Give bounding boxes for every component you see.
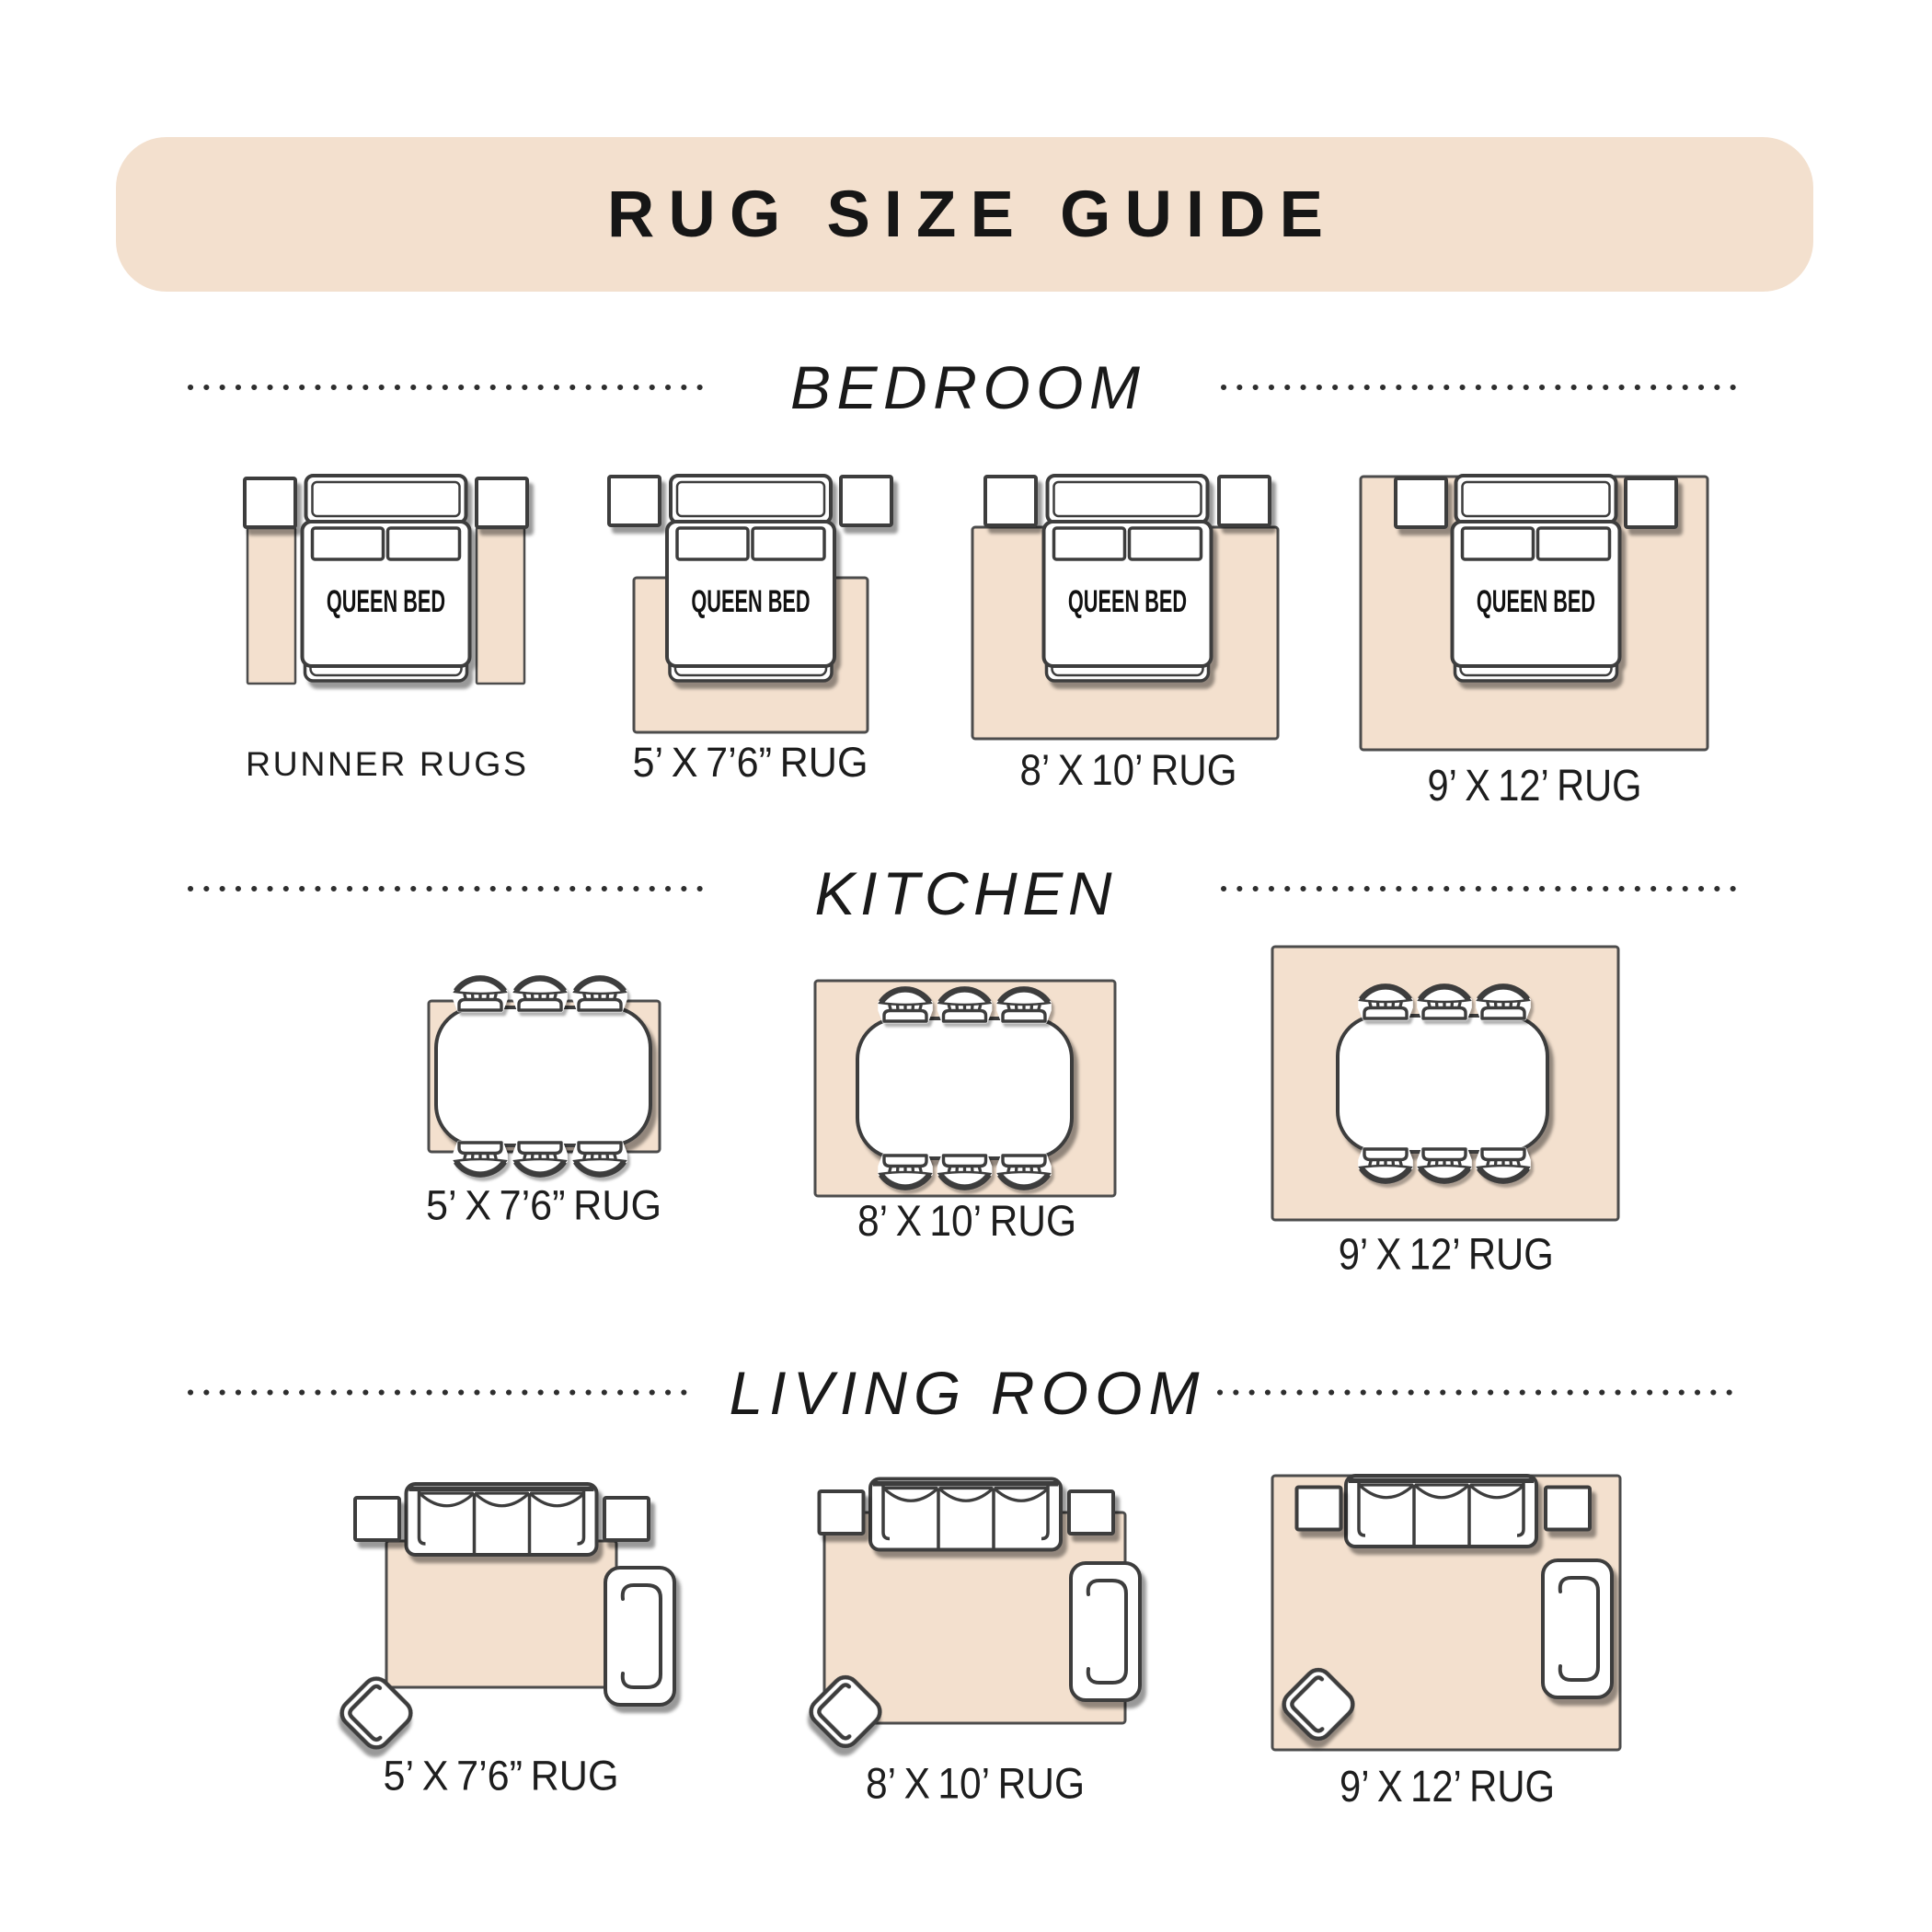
svg-text:8’ X 10’ RUG: 8’ X 10’ RUG bbox=[866, 1760, 1085, 1809]
svg-text:9’ X 12’ RUG: 9’ X 12’ RUG bbox=[1340, 1762, 1555, 1811]
svg-text:QUEEN BED: QUEEN BED bbox=[1477, 585, 1595, 619]
svg-text:9’ X 12’ RUG: 9’ X 12’ RUG bbox=[1428, 761, 1642, 811]
svg-text:QUEEN BED: QUEEN BED bbox=[327, 585, 445, 619]
svg-text:5’ X 7’6” RUG: 5’ X 7’6” RUG bbox=[633, 739, 868, 786]
svg-text:5’ X 7’6” RUG: 5’ X 7’6” RUG bbox=[426, 1182, 661, 1229]
svg-text:8’ X 10’ RUG: 8’ X 10’ RUG bbox=[1020, 746, 1237, 795]
svg-text:RUNNER RUGS: RUNNER RUGS bbox=[246, 744, 526, 783]
svg-text:QUEEN BED: QUEEN BED bbox=[691, 585, 810, 619]
svg-text:9’ X 12’ RUG: 9’ X 12’ RUG bbox=[1339, 1230, 1554, 1280]
svg-text:5’ X 7’6” RUG: 5’ X 7’6” RUG bbox=[384, 1753, 619, 1800]
svg-text:8’ X 10’ RUG: 8’ X 10’ RUG bbox=[857, 1197, 1076, 1246]
svg-text:QUEEN BED: QUEEN BED bbox=[1068, 585, 1187, 619]
